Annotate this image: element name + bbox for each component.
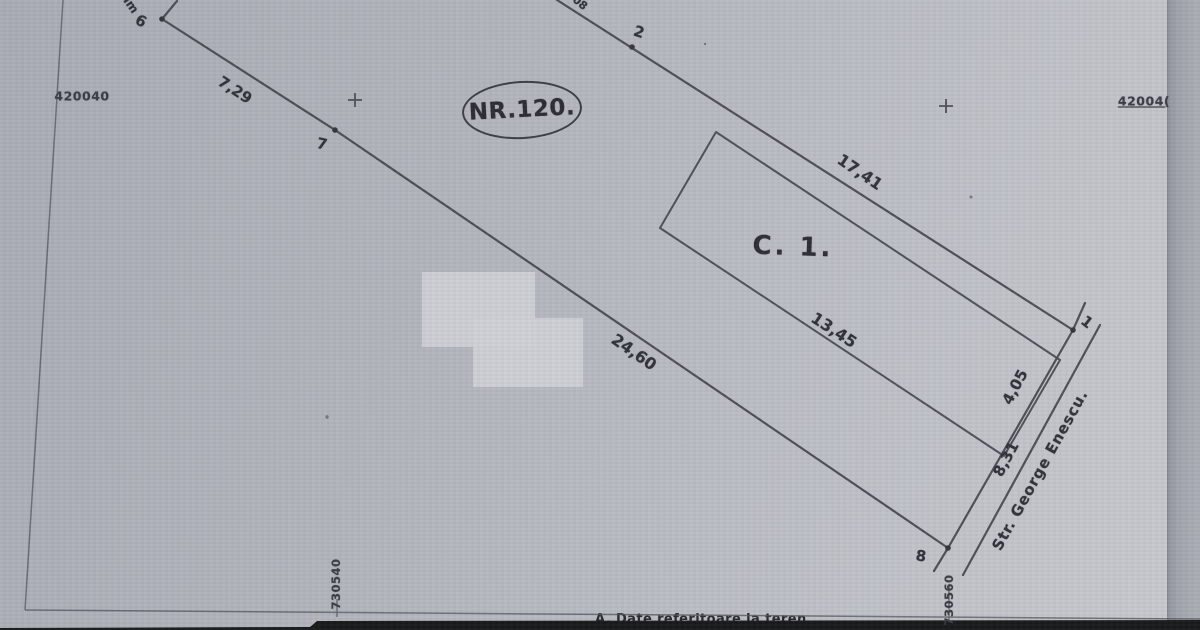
street-edge-line — [963, 325, 1100, 575]
building-label: C. 1. — [752, 231, 834, 264]
parcel-boundary-front — [557, 0, 1085, 330]
grid-coordinate-north-right: 42004( — [1118, 94, 1170, 109]
scanned-cadastral-plan: A. Date referitoare la teren — [0, 0, 1200, 630]
scan-speck — [325, 415, 328, 418]
vertex-dot — [1070, 327, 1076, 333]
scan-speck — [704, 43, 706, 45]
parcel-number-label: NR.120. — [468, 94, 576, 126]
grid-coordinate-east-left: 730540 — [329, 558, 343, 609]
vertex-dot — [332, 127, 338, 133]
plan-border-bottom — [25, 610, 1200, 619]
scan-speck — [970, 196, 973, 199]
plan-drawing — [0, 0, 1200, 630]
grid-coordinate-north-left: 420040 — [54, 89, 109, 104]
survey-cross-icon — [348, 93, 362, 107]
footer-bar — [0, 620, 1200, 630]
vertex-dot — [159, 16, 165, 22]
survey-cross-icon — [939, 99, 953, 113]
redaction-block — [473, 318, 583, 387]
grid-coordinate-east-right: 730560 — [942, 574, 956, 625]
vertex-dot — [945, 545, 951, 551]
vertex-dot — [629, 44, 635, 50]
